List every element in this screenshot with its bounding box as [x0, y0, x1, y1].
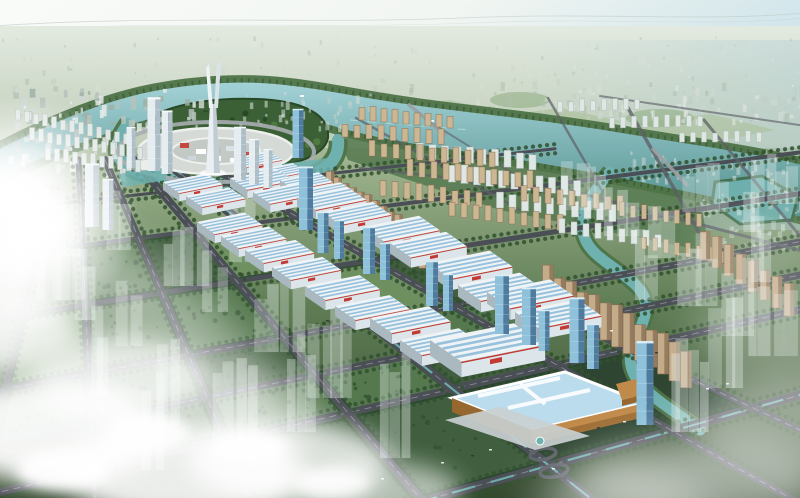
glass-tower	[318, 212, 329, 253]
glass-tower	[380, 243, 390, 280]
glass-tower	[293, 109, 304, 158]
masterplan-birdseye-illustration	[0, 0, 800, 498]
car	[597, 427, 600, 429]
white-tower	[234, 127, 246, 180]
glass-tower	[539, 310, 550, 351]
glass-tower	[522, 288, 536, 345]
park-patch	[490, 92, 550, 108]
glass-tower	[334, 220, 344, 259]
car	[350, 300, 353, 302]
glass-tower	[443, 274, 453, 311]
glass-tower	[570, 297, 585, 363]
glass-tower	[363, 227, 375, 274]
boat	[300, 95, 304, 97]
car	[533, 477, 536, 479]
car	[552, 468, 555, 470]
car	[489, 449, 492, 451]
car	[623, 421, 626, 423]
fountain	[536, 437, 544, 445]
glass-tower	[637, 341, 654, 425]
car	[610, 330, 613, 332]
glass-tower	[299, 166, 313, 230]
glass-tower	[587, 324, 599, 369]
car	[441, 462, 444, 464]
planned-building-ghost	[648, 206, 675, 258]
car	[471, 455, 474, 457]
aerial-city-render	[0, 0, 800, 498]
car	[326, 320, 329, 322]
white-tower	[264, 149, 273, 188]
glass-tower	[426, 261, 438, 306]
white-tower	[148, 97, 161, 171]
glass-tower	[495, 275, 509, 334]
car	[655, 352, 658, 354]
white-tower	[249, 139, 259, 184]
white-tower	[127, 127, 136, 168]
car	[706, 388, 709, 390]
white-tower	[162, 110, 173, 174]
